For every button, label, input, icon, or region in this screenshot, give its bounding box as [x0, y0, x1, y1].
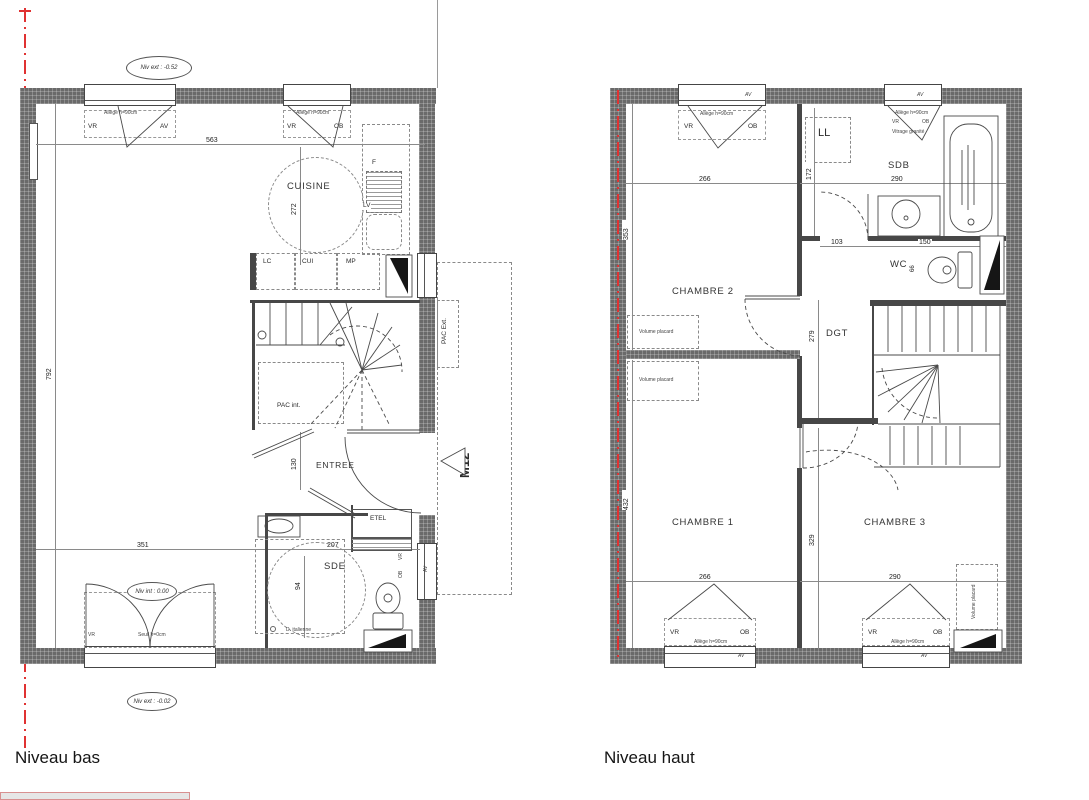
title-niveau-bas: Niveau bas [15, 748, 100, 768]
shutter-label-vr: VR [868, 630, 877, 637]
window-label-av: AV [744, 93, 752, 98]
wall-top [610, 88, 1022, 104]
dim-329: 329 [808, 526, 817, 546]
door-chambre3 [806, 450, 898, 490]
dim-266b: 266 [698, 574, 712, 581]
dim-103: 103 [830, 239, 844, 246]
shutter-label-vr: VR [892, 120, 899, 125]
window-sdb [884, 84, 942, 106]
dim-line-329 [818, 428, 819, 648]
placard-label-2: Volume placard [639, 378, 673, 383]
wall-ch1-ch3 [797, 468, 802, 648]
door-chambre1 [800, 420, 858, 468]
plan-niveau-haut: AV AV Allège h=90cm VR OB Allège h=90cm … [0, 0, 549, 800]
wall-stair-left [872, 303, 874, 425]
window-chambre3 [862, 646, 950, 668]
window-label-ob: OB [748, 124, 757, 131]
wall-sdb-wc-right [868, 236, 1006, 241]
bathtub [944, 116, 998, 240]
dim-line-266t [626, 183, 797, 184]
room-label-chambre2: CHAMBRE 2 [672, 287, 734, 297]
property-line-overlay [617, 90, 619, 662]
dim-290t: 290 [890, 176, 904, 183]
dim-66: 66 [909, 258, 917, 272]
allege-label: Allège h=90cm [694, 640, 727, 645]
room-label-sdb: SDB [888, 161, 910, 171]
door-chambre2 [745, 296, 800, 356]
dim-353: 353 [622, 220, 631, 240]
wall-chambre2-dgt-upper [797, 104, 802, 296]
dim-line-290b [800, 581, 1006, 582]
window-label-ob: OB [740, 630, 749, 637]
window-label-av: AV [916, 93, 924, 98]
floor-plan-page: Allège h=90cm VR AV Allège h=90cm VR OB … [0, 0, 1089, 800]
washing-machine-label: LL [818, 128, 830, 139]
dim-line-353 [632, 104, 633, 350]
window-label-av: AV [920, 654, 928, 659]
door-sdb [820, 192, 868, 240]
window-label-ob: OB [922, 120, 929, 125]
wall-placard-divider [626, 350, 800, 359]
wall-dgt-bottom [800, 418, 878, 424]
window-label-av: AV [737, 654, 745, 659]
dim-line-290t [800, 183, 1006, 184]
title-niveau-haut: Niveau haut [604, 748, 695, 768]
allege-label: Allège h=90cm [895, 111, 928, 116]
dim-line-266b [626, 581, 797, 582]
dim-290b: 290 [888, 574, 902, 581]
sdb-vanity [878, 196, 940, 236]
allege-label: Allège h=90cm [700, 112, 733, 117]
dim-279: 279 [808, 322, 817, 342]
placard-label-1: Volume placard [639, 330, 673, 335]
dim-432: 432 [622, 490, 631, 510]
shutter-label-vr: VR [684, 124, 693, 131]
window-label-ob: OB [933, 630, 942, 637]
room-label-wc: WC [890, 260, 907, 270]
allege-label: Allège h=90cm [891, 640, 924, 645]
bottom-edge-bar [0, 792, 190, 800]
washing-machine-zone [805, 117, 851, 163]
room-label-dgt: DGT [826, 329, 848, 339]
staircase-haut [874, 303, 1000, 467]
swing-window-chambre1 [668, 584, 752, 620]
swing-window-chambre3 [866, 584, 946, 620]
dim-150: 150 [918, 239, 932, 246]
wall-ch1-ch3-stub [797, 420, 802, 428]
placard-zone-3 [956, 564, 998, 630]
wall-chambre2-dgt-lower [797, 356, 802, 420]
dim-line-279 [818, 300, 819, 418]
wall-under-wc [870, 300, 1006, 306]
window-chambre2 [678, 84, 766, 106]
dim-172: 172 [805, 162, 814, 180]
room-label-chambre3: CHAMBRE 3 [864, 518, 926, 528]
dim-266t: 266 [698, 176, 712, 183]
vitrage-granite-label: Vitrage granité [892, 130, 924, 135]
wall-sdb-wc-left [802, 236, 820, 241]
room-label-chambre1: CHAMBRE 1 [672, 518, 734, 528]
dim-line-432 [632, 360, 633, 648]
wc-toilet [928, 252, 972, 288]
shutter-label-vr: VR [670, 630, 679, 637]
dim-line-172 [814, 108, 815, 236]
wall-right [1006, 88, 1022, 664]
fixed-window-triangle-wc [980, 236, 1004, 294]
dim-line-103-150 [820, 246, 1006, 247]
